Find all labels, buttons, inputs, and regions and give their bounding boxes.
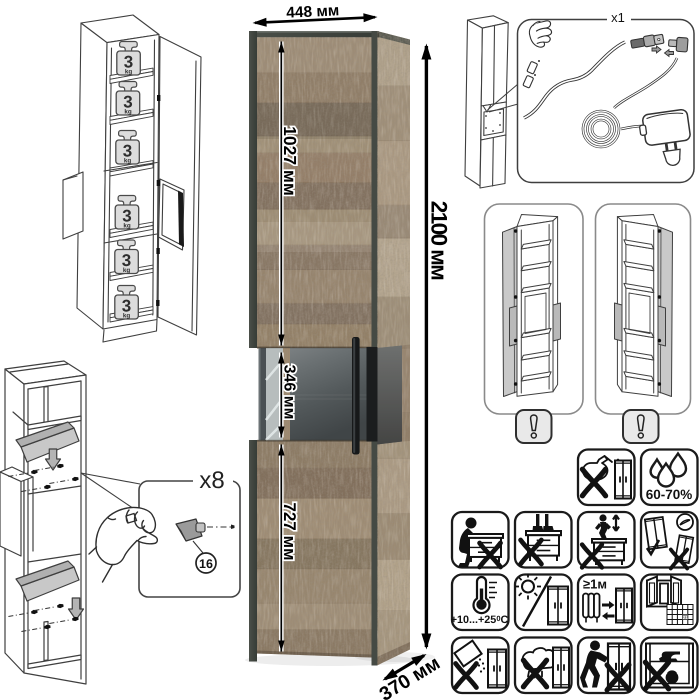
svg-text:kg: kg <box>123 267 131 274</box>
svg-text:727 мм: 727 мм <box>280 502 299 560</box>
svg-text:kg: kg <box>123 223 131 230</box>
svg-text:1027 мм: 1027 мм <box>280 126 300 196</box>
svg-text:kg: kg <box>124 158 132 165</box>
svg-text:x8: x8 <box>199 467 224 494</box>
svg-text:≥1м: ≥1м <box>583 577 607 592</box>
svg-text:448 мм: 448 мм <box>286 2 340 21</box>
svg-text:346 мм: 346 мм <box>281 365 298 420</box>
svg-text:16: 16 <box>199 557 213 571</box>
svg-text:2100 мм: 2100 мм <box>427 201 452 280</box>
svg-text:x1: x1 <box>611 10 625 25</box>
svg-text:60-70%: 60-70% <box>646 487 693 502</box>
svg-text:+10...+250C: +10...+250C <box>451 614 509 626</box>
svg-text:kg: kg <box>125 69 133 76</box>
svg-text:kg: kg <box>124 109 132 116</box>
svg-text:kg: kg <box>123 313 131 320</box>
svg-text:21: 21 <box>683 615 689 620</box>
